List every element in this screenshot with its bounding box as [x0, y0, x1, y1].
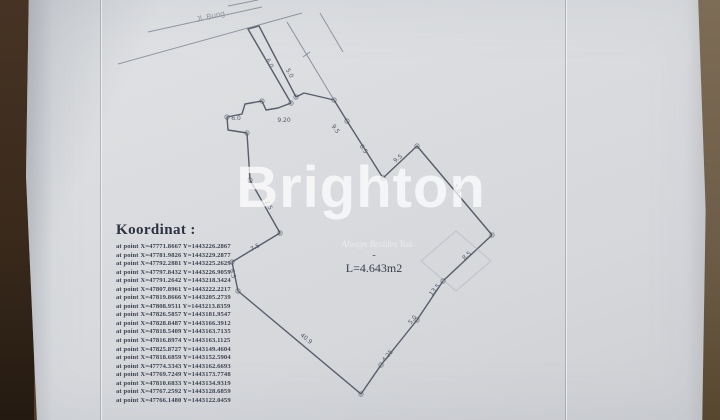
- koordinat-line: at point X=47818.5409 Y=1443163.7135: [116, 328, 231, 337]
- koordinat-line: at point X=47810.6833 Y=1443134.9319: [116, 380, 231, 389]
- site-plan-drawing: Jl. Bung 6.05.06.09.209.56.59.57.08.513.…: [0, 0, 720, 420]
- koordinat-line: at point X=47807.8961 Y=1443222.2217: [116, 286, 231, 295]
- edge-dimension: 6.0: [231, 115, 241, 122]
- building-footprint-outline: [421, 231, 491, 291]
- building-outline: [421, 231, 491, 291]
- edge-dimension: 5.0: [407, 314, 419, 326]
- edge-dimension: 7.5: [249, 242, 261, 253]
- koordinat-line: at point X=47797.8432 Y=1443226.9059: [116, 269, 231, 278]
- koordinat-line: at point X=47771.8667 Y=1443226.2867: [116, 243, 231, 252]
- boundary-line: [287, 22, 334, 100]
- road-lines: [118, 0, 343, 64]
- area-label-dash: -: [372, 250, 375, 261]
- koordinat-line: at point X=47818.6859 Y=1443152.5904: [116, 354, 231, 363]
- koordinat-line: at point X=47826.5857 Y=1443181.9547: [116, 311, 231, 320]
- koordinat-block: Koordinat : at point X=47771.8667 Y=1443…: [116, 222, 231, 405]
- edge-dimension: 9.5: [330, 123, 341, 135]
- koordinat-list: at point X=47771.8667 Y=1443226.2867at p…: [116, 243, 231, 405]
- koordinat-line: at point X=47791.2642 Y=1443218.3424: [116, 277, 231, 286]
- koordinat-line: at point X=47767.2592 Y=1443128.6859: [116, 388, 231, 397]
- koordinat-line: at point X=47816.8974 Y=1443163.1125: [116, 337, 231, 346]
- edge-dimension: 6.0: [264, 57, 275, 69]
- street-name-label: Jl. Bung: [195, 9, 225, 24]
- boundary-line: [303, 52, 310, 57]
- koordinat-line: at point X=47774.3343 Y=1443162.6693: [116, 363, 231, 372]
- edge-dimension: 9.20: [277, 117, 291, 124]
- edge-dimension: 7.0: [451, 183, 463, 195]
- edge-dimension: 8.5: [461, 250, 473, 262]
- koordinat-line: at point X=47808.9511 Y=1443213.8359: [116, 303, 231, 312]
- parcel-outline: [227, 26, 492, 394]
- edge-dimension: 9.5: [392, 153, 404, 165]
- koordinat-heading: Koordinat :: [116, 222, 231, 239]
- koordinat-line: at point X=47781.9826 Y=1443229.2877: [116, 252, 231, 261]
- koordinat-line: at point X=47825.8727 Y=1443149.4604: [116, 346, 231, 355]
- parcel-boundary: [227, 26, 492, 394]
- edge-dimension-labels: 6.05.06.09.209.56.59.57.08.513.55.04.254…: [228, 57, 473, 363]
- road-line: [320, 13, 343, 52]
- koordinat-line: at point X=47766.1480 Y=1443122.0459: [116, 397, 231, 406]
- koordinat-line: at point X=47769.7249 Y=1443173.7748: [116, 371, 231, 380]
- koordinat-line: at point X=47819.8666 Y=1443205.2739: [116, 294, 231, 303]
- edge-dimension: 2.5: [263, 199, 274, 211]
- boundary-helper-lines: [287, 22, 334, 100]
- road-line: [228, 0, 258, 6]
- area-label: L=4.643m2: [346, 261, 402, 275]
- koordinat-line: at point X=47828.8487 Y=1443166.3912: [116, 320, 231, 329]
- koordinat-line: at point X=47792.2881 Y=1443225.2629: [116, 260, 231, 269]
